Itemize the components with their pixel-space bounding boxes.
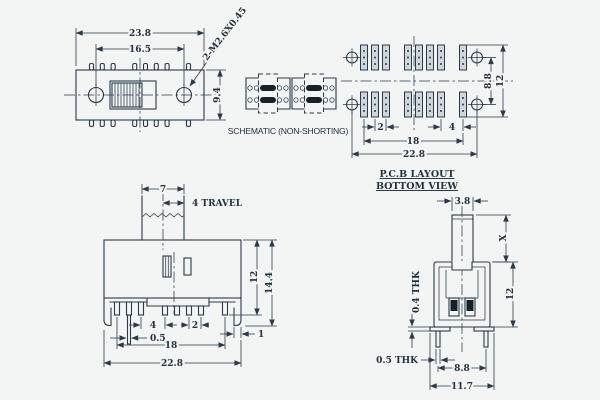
side-knob bbox=[452, 215, 473, 262]
dim-pcb-height: 12 bbox=[496, 75, 506, 88]
dim-pcb-row-gap: 8.8 bbox=[484, 73, 494, 89]
dim-side-knob-width: 3.8 bbox=[455, 197, 471, 207]
top-view: 23.8 16.5 9.4 2-M2.6X0.45 bbox=[64, 6, 249, 132]
long-pin bbox=[128, 315, 131, 344]
side-view: 3.8 X 0.4 THK bbox=[376, 197, 518, 392]
dim-side-knob-height: X bbox=[499, 234, 509, 241]
slide-switch-drawing: 23.8 16.5 9.4 2-M2.6X0.45 bbox=[0, 0, 600, 400]
dim-hole-spacing: 16.5 bbox=[129, 45, 151, 55]
schematic-caption: SCHEMATIC (NON-SHORTING) bbox=[228, 126, 349, 136]
dim-top-width: 23.8 bbox=[129, 29, 151, 39]
dim-pin-thickness: 0.5 THK bbox=[376, 356, 419, 366]
front-bottom-profile bbox=[104, 298, 241, 344]
dim-top-height: 9.4 bbox=[213, 87, 223, 103]
dim-pin-gap: 4 bbox=[150, 321, 156, 331]
front-body-details bbox=[163, 256, 191, 277]
dim-front-width: 22.8 bbox=[161, 359, 183, 369]
dim-pcb-width: 22.8 bbox=[403, 150, 425, 160]
schematic-view: SCHEMATIC (NON-SHORTING) bbox=[228, 74, 349, 136]
dim-side-body-height: 12 bbox=[506, 288, 516, 301]
technical-drawing-sheet: 23.8 16.5 9.4 2-M2.6X0.45 bbox=[0, 0, 600, 400]
dim-side-width: 11.7 bbox=[451, 382, 473, 392]
dim-pcb-pitch: 2 bbox=[377, 123, 383, 133]
pcb-layout-view: 2 4 18 22.8 8.8 12 P.C.B LAYOUT BOTTOM V… bbox=[341, 36, 513, 192]
dim-front-span: 18 bbox=[165, 341, 178, 351]
dim-pin-width: 0.5 bbox=[150, 334, 166, 344]
dim-pcb-span: 18 bbox=[407, 137, 420, 147]
dim-foot-thickness: 0.4 THK bbox=[412, 270, 422, 313]
thread-callout: 2-M2.6X0.45 bbox=[201, 6, 249, 63]
schematic-pole-2 bbox=[292, 74, 336, 113]
dim-pin-pitch: 2 bbox=[192, 321, 198, 331]
dim-travel: 4 TRAVEL bbox=[192, 199, 243, 209]
pcb-title-line1: P.C.B LAYOUT bbox=[380, 169, 455, 180]
dim-front-body-height: 12 bbox=[250, 271, 260, 284]
dim-side-pin-span: 8.8 bbox=[454, 364, 470, 374]
pcb-title-line2: BOTTOM VIEW bbox=[376, 181, 458, 192]
dim-knob-width: 7 bbox=[160, 185, 166, 195]
front-body bbox=[104, 240, 241, 298]
front-view: 7 4 TRAVEL 4 bbox=[104, 184, 277, 369]
dim-pcb-end-gap: 4 bbox=[449, 123, 455, 133]
schematic-pole-1 bbox=[246, 74, 290, 113]
dim-front-total-height: 14.4 bbox=[265, 272, 275, 294]
dim-leg-width: 1 bbox=[258, 330, 264, 340]
